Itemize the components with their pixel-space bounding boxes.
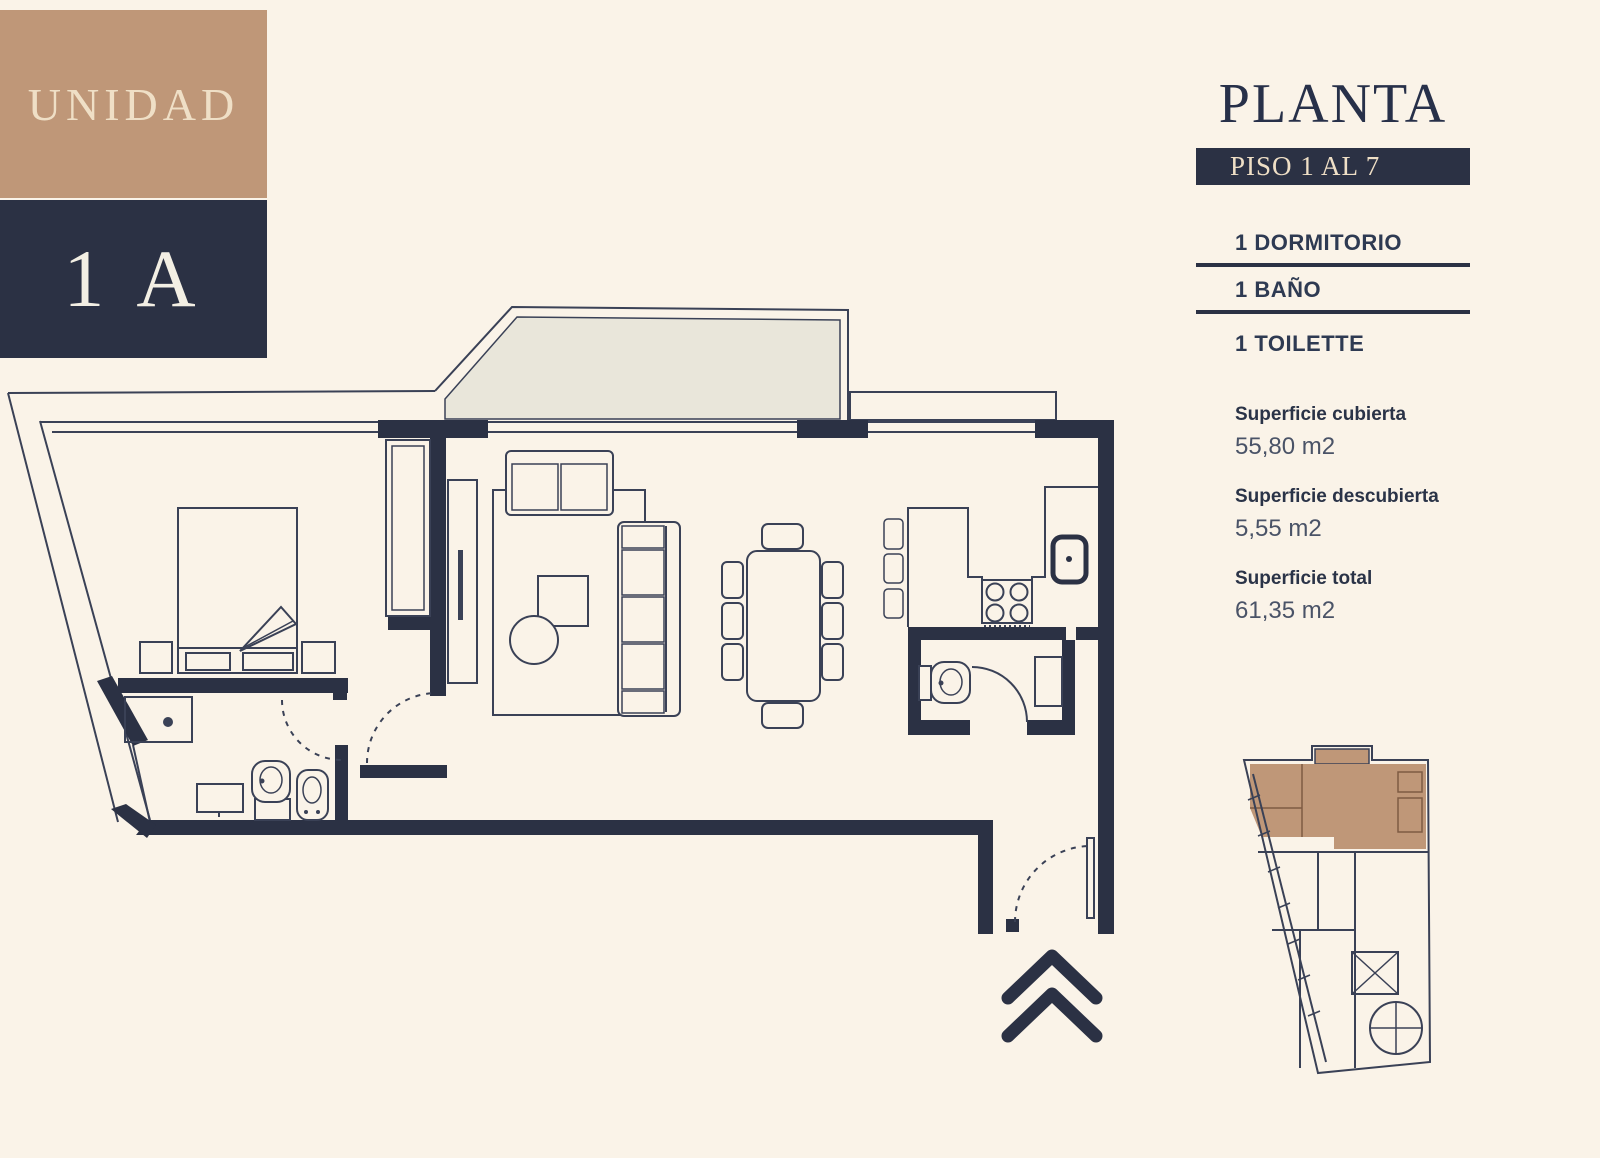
nightstand bbox=[302, 642, 335, 673]
feature-dormitorio: 1 DORMITORIO bbox=[1196, 231, 1470, 254]
kitchen-sink bbox=[1053, 537, 1086, 582]
area-value: 61,35 m2 bbox=[1235, 598, 1470, 623]
door-arc-toilette bbox=[972, 667, 1027, 722]
divider bbox=[1196, 263, 1470, 267]
unit-badge-text: UNIDAD bbox=[28, 78, 239, 131]
unit-badge-label: UNIDAD bbox=[0, 10, 267, 198]
stove bbox=[982, 580, 1032, 626]
floor-range-badge: PISO 1 AL 7 bbox=[1196, 148, 1470, 185]
area-descubierta: Superficie descubierta 5,55 m2 bbox=[1235, 487, 1470, 541]
page-title: PLANTA bbox=[1196, 76, 1470, 132]
key-plan-unit-highlight bbox=[1250, 764, 1426, 849]
coffee-table bbox=[510, 576, 588, 664]
area-total: Superficie total 61,35 m2 bbox=[1235, 569, 1470, 623]
surface-areas: Superficie cubierta 55,80 m2 Superficie … bbox=[1196, 405, 1470, 623]
area-value: 5,55 m2 bbox=[1235, 516, 1470, 541]
divider bbox=[1196, 310, 1470, 314]
toilette-cabinet bbox=[1035, 657, 1062, 706]
area-label: Superficie total bbox=[1235, 569, 1470, 589]
unit-code-text: 1 A bbox=[63, 232, 203, 326]
door-arc-bedroom bbox=[367, 693, 437, 763]
feature-toilette: 1 TOILETTE bbox=[1196, 332, 1470, 355]
door-arc-bathroom bbox=[282, 700, 342, 760]
balcony bbox=[435, 307, 1056, 420]
nightstand bbox=[140, 642, 172, 673]
key-plan-stairs-icon bbox=[1352, 952, 1398, 994]
entry-door bbox=[1015, 838, 1094, 922]
toilette-toilet bbox=[919, 662, 970, 703]
bedroom-closet bbox=[386, 440, 430, 616]
unit-badge-code: 1 A bbox=[0, 200, 267, 358]
key-plan bbox=[1244, 746, 1430, 1073]
feature-bano: 1 BAÑO bbox=[1196, 278, 1470, 301]
area-label: Superficie cubierta bbox=[1235, 405, 1470, 425]
bathroom-bidet bbox=[297, 770, 328, 820]
dining-table bbox=[747, 551, 820, 701]
bedroom-bed bbox=[178, 508, 297, 673]
tv-cabinet bbox=[448, 480, 477, 683]
area-label: Superficie descubierta bbox=[1235, 487, 1470, 507]
area-cubierta: Superficie cubierta 55,80 m2 bbox=[1235, 405, 1470, 459]
loveseat bbox=[506, 451, 613, 515]
area-value: 55,80 m2 bbox=[1235, 434, 1470, 459]
info-panel: PLANTA PISO 1 AL 7 1 DORMITORIO 1 BAÑO 1… bbox=[1196, 76, 1470, 623]
floor-plan-sheet: UNIDAD 1 A PLANTA PISO 1 AL 7 1 DORMITOR… bbox=[0, 0, 1600, 1158]
double-chevron-up-icon bbox=[1008, 956, 1096, 1036]
key-plan-elevator-icon bbox=[1370, 1002, 1422, 1054]
sofa bbox=[618, 522, 680, 716]
bathroom-cabinet bbox=[197, 784, 243, 817]
bathroom-toilet bbox=[252, 761, 290, 820]
